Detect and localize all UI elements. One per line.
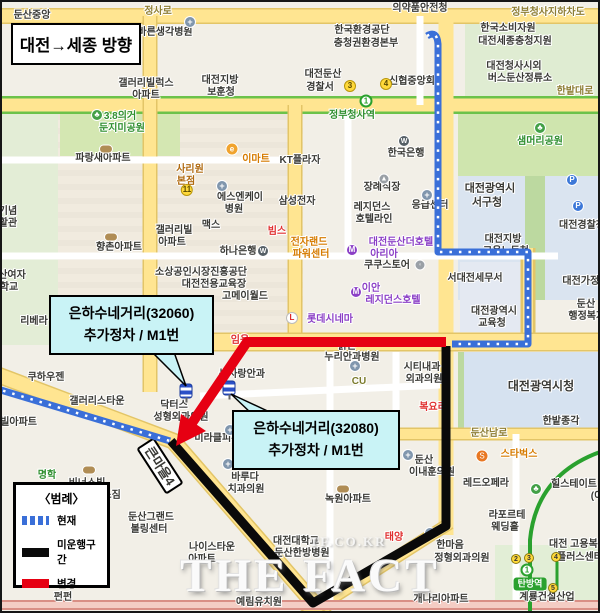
legend-swatch-changed [22, 579, 49, 588]
watermark-logo: THE FACT [180, 549, 439, 603]
cinema-icon: L [286, 312, 298, 324]
park-tree-icon: ♣ [534, 122, 546, 134]
callout-stop-32060: 은하수네거리(32060) 추가정차 / M1번 [49, 295, 214, 355]
hospital-cross-icon: + [184, 16, 196, 28]
metro-badge-icon: 11 [181, 184, 193, 196]
hospital-cross-icon: + [349, 360, 361, 372]
legend-item-discontinued: 미운행구간 [22, 537, 101, 567]
legend-item-current: 현재 [22, 513, 101, 528]
apt-oval-icon [336, 485, 350, 494]
legend-label: 미운행구간 [57, 537, 101, 567]
callout-line1: 은하수네거리(32060) [69, 303, 195, 325]
exit-badge-icon: 5 [548, 583, 558, 593]
emart-icon: e [226, 143, 239, 156]
apt-oval-icon [104, 233, 118, 242]
map-screenshot: 둔산중앙정사로의약품안전청정부청사지하차도바른생각병원한국환경공단충청권환경본부… [0, 0, 600, 613]
apt-oval-icon [82, 466, 96, 475]
exit-badge-icon: 3 [524, 553, 534, 563]
starbucks-icon: S [476, 450, 489, 463]
m-circle-icon: M [350, 286, 362, 298]
bus-stop-icon [223, 381, 236, 396]
callout-line2: 추가정차 / M1번 [84, 325, 180, 347]
parking-icon: P [566, 174, 578, 186]
legend: 〈범례〉 현재 미운행구간 변경 [13, 482, 110, 588]
park-tree-icon: ♣ [91, 109, 103, 121]
apt-oval-icon [99, 145, 113, 154]
legend-item-changed: 변경 [22, 576, 101, 591]
station-badge-icon: 1 [360, 95, 373, 108]
bank-w-icon: W [398, 135, 410, 147]
hospital-cross-icon: + [421, 189, 433, 201]
shop-circle-icon: ▲ [379, 174, 390, 185]
callout-line1: 은하수네거리(32080) [253, 418, 379, 440]
station-circle-icon: 1 [521, 564, 534, 577]
legend-label: 현재 [57, 513, 76, 528]
hospital-cross-icon: + [402, 449, 414, 461]
watermark-url: TF.CO.KR [310, 534, 387, 550]
callout-stop-32080: 은하수네거리(32080) 추가정차 / M1번 [232, 410, 400, 470]
park-tree-icon: ♣ [530, 483, 542, 495]
metro-badge-icon: 4 [380, 78, 392, 90]
parking-icon: P [572, 200, 584, 212]
hospital-cross-icon: + [424, 527, 436, 539]
legend-label: 변경 [57, 576, 76, 591]
callout-line2: 추가정차 / M1번 [268, 440, 364, 462]
shop-circle-icon: ◦ [415, 260, 426, 271]
hospital-cross-icon: + [216, 180, 228, 192]
bus-stop-icon [180, 384, 193, 399]
legend-title: 〈범례〉 [22, 490, 101, 507]
metro-badge-icon: 3 [344, 80, 356, 92]
m-circle-icon: M [346, 244, 358, 256]
exit-badge-icon: 4 [551, 552, 561, 562]
legend-swatch-discontinued [22, 548, 49, 557]
exit-badge-icon: 2 [511, 554, 521, 564]
bank-w-icon: W [257, 245, 269, 257]
legend-swatch-current [22, 516, 49, 525]
direction-title-box: 대전→세종 방향 [11, 23, 141, 65]
